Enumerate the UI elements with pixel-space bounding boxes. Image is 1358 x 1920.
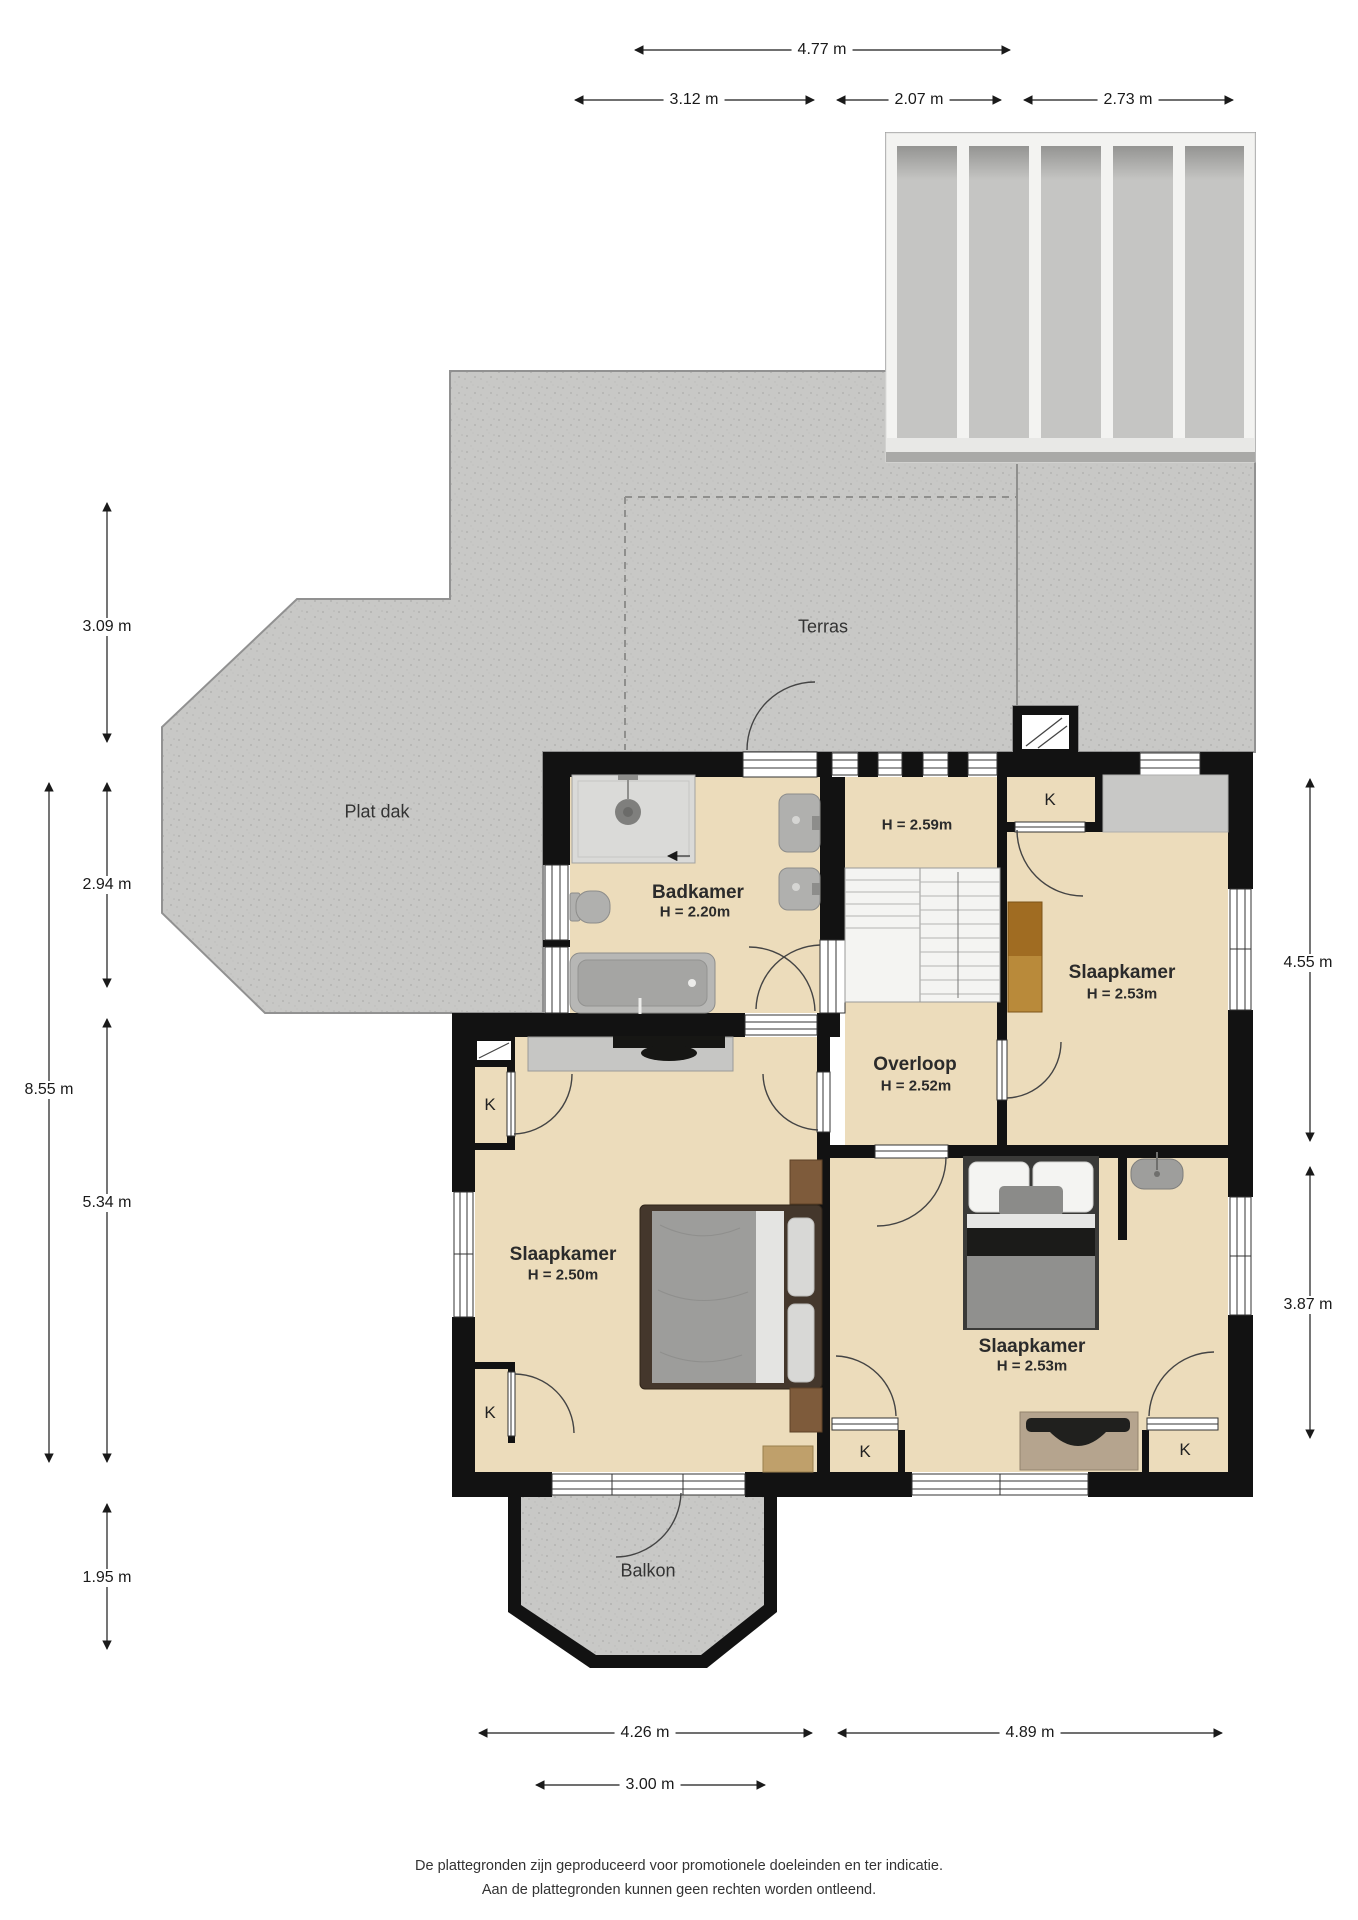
dim-top-2: 2.07 m bbox=[889, 91, 950, 109]
toilet bbox=[570, 891, 610, 923]
duct-shaft bbox=[473, 1037, 515, 1064]
dim-bottom-balcony: 3.00 m bbox=[620, 1776, 681, 1794]
window-right-2 bbox=[1230, 1197, 1251, 1315]
bench bbox=[763, 1446, 813, 1472]
badkamer-height: H = 2.20m bbox=[660, 904, 730, 921]
door-closet-bottomright-2 bbox=[1147, 1418, 1218, 1430]
slaapkamer-links-name: Slaapkamer bbox=[510, 1244, 617, 1266]
dim-right-1: 4.55 m bbox=[1278, 954, 1339, 972]
dim-top-3: 2.73 m bbox=[1098, 91, 1159, 109]
tv-dresser bbox=[528, 1036, 733, 1071]
window-top-1 bbox=[832, 753, 858, 775]
window-top-4 bbox=[968, 753, 997, 775]
bathroom-sink-2 bbox=[779, 868, 820, 910]
window-badkamer-1 bbox=[545, 865, 568, 940]
door-badkamer-bedroom bbox=[745, 1015, 817, 1035]
door-closet-left-2 bbox=[508, 1372, 515, 1436]
door-closet-topright bbox=[1015, 822, 1085, 832]
slaapkamer-rechtsonder-name: Slaapkamer bbox=[979, 1336, 1086, 1358]
stairwell-height: H = 2.59m bbox=[882, 817, 952, 834]
window-badkamer-2 bbox=[545, 947, 568, 1013]
slaapkamer-rechtsonder-height: H = 2.53m bbox=[997, 1358, 1067, 1375]
skylight-glass-roof bbox=[886, 133, 1255, 462]
dim-top-total: 4.77 m bbox=[792, 41, 853, 59]
window-left-bedroom bbox=[454, 1192, 473, 1317]
window-top-bedroom bbox=[1140, 753, 1200, 775]
door-badkamer bbox=[820, 940, 845, 1013]
dim-top-1: 3.12 m bbox=[664, 91, 725, 109]
dim-left-3: 5.34 m bbox=[77, 1194, 138, 1212]
dim-left-2: 2.94 m bbox=[77, 876, 138, 894]
closet-label-bottomright-2: K bbox=[1179, 1440, 1190, 1460]
window-top-3 bbox=[923, 753, 948, 775]
door-overloop-bottomright-bedroom bbox=[875, 1145, 948, 1158]
window-top-2 bbox=[878, 753, 902, 775]
dim-left-total: 8.55 m bbox=[19, 1081, 80, 1099]
floorplan-page: Terras Plat dak Balkon Badkamer H = 2.20… bbox=[0, 0, 1358, 1920]
door-closet-bottomright-1 bbox=[832, 1418, 898, 1430]
balcony-structure bbox=[508, 1495, 777, 1668]
dim-left-balcony: 1.95 m bbox=[77, 1569, 138, 1587]
window-right-1 bbox=[1230, 889, 1251, 1010]
dim-left-1: 3.09 m bbox=[77, 618, 138, 636]
slaapkamer-rechtsboven-height: H = 2.53m bbox=[1087, 986, 1157, 1003]
closet-label-topright: K bbox=[1044, 790, 1055, 810]
shower bbox=[572, 775, 695, 863]
door-overloop-left-bedroom bbox=[817, 1072, 830, 1132]
door-overloop-topright-bedroom bbox=[997, 1040, 1007, 1100]
door-terrace bbox=[743, 752, 817, 777]
slaapkamer-links-height: H = 2.50m bbox=[528, 1267, 598, 1284]
floorplan-drawing bbox=[0, 0, 1358, 1920]
desk-with-chair bbox=[1020, 1412, 1138, 1470]
closet-label-bottomright-1: K bbox=[859, 1442, 870, 1462]
footer-disclaimer-line2: Aan de plattegronden kunnen geen rechten… bbox=[482, 1882, 876, 1898]
badkamer-name: Badkamer bbox=[652, 882, 744, 904]
staircase bbox=[845, 868, 1000, 1002]
dim-right-2: 3.87 m bbox=[1278, 1296, 1339, 1314]
bathtub bbox=[570, 953, 715, 1014]
wardrobe-wood bbox=[1008, 902, 1042, 1012]
closet-label-left-1: K bbox=[484, 1095, 495, 1115]
door-balcony bbox=[552, 1474, 745, 1495]
footer-disclaimer-line1: De plattegronden zijn geproduceerd voor … bbox=[415, 1858, 943, 1874]
terras-label: Terras bbox=[798, 617, 848, 638]
overloop-name: Overloop bbox=[873, 1054, 956, 1076]
bathroom-sink-1 bbox=[779, 794, 820, 852]
window-bottom-bedroom bbox=[912, 1474, 1088, 1495]
bed-right-bedroom bbox=[963, 1156, 1099, 1330]
dim-bottom-1: 4.26 m bbox=[615, 1724, 676, 1742]
closet-label-left-2: K bbox=[484, 1403, 495, 1423]
balkon-label: Balkon bbox=[620, 1561, 675, 1582]
plat-dak-label: Plat dak bbox=[344, 802, 409, 823]
chimney-shaft bbox=[1013, 706, 1078, 777]
wardrobe-gray bbox=[1103, 775, 1228, 832]
overloop-height: H = 2.52m bbox=[881, 1078, 951, 1095]
bed-left-bedroom bbox=[640, 1205, 822, 1389]
nightstand-2 bbox=[790, 1388, 822, 1432]
dim-bottom-2: 4.89 m bbox=[1000, 1724, 1061, 1742]
slaapkamer-rechtsboven-name: Slaapkamer bbox=[1069, 962, 1176, 984]
door-closet-left-1 bbox=[507, 1072, 515, 1136]
nightstand-1 bbox=[790, 1160, 822, 1204]
